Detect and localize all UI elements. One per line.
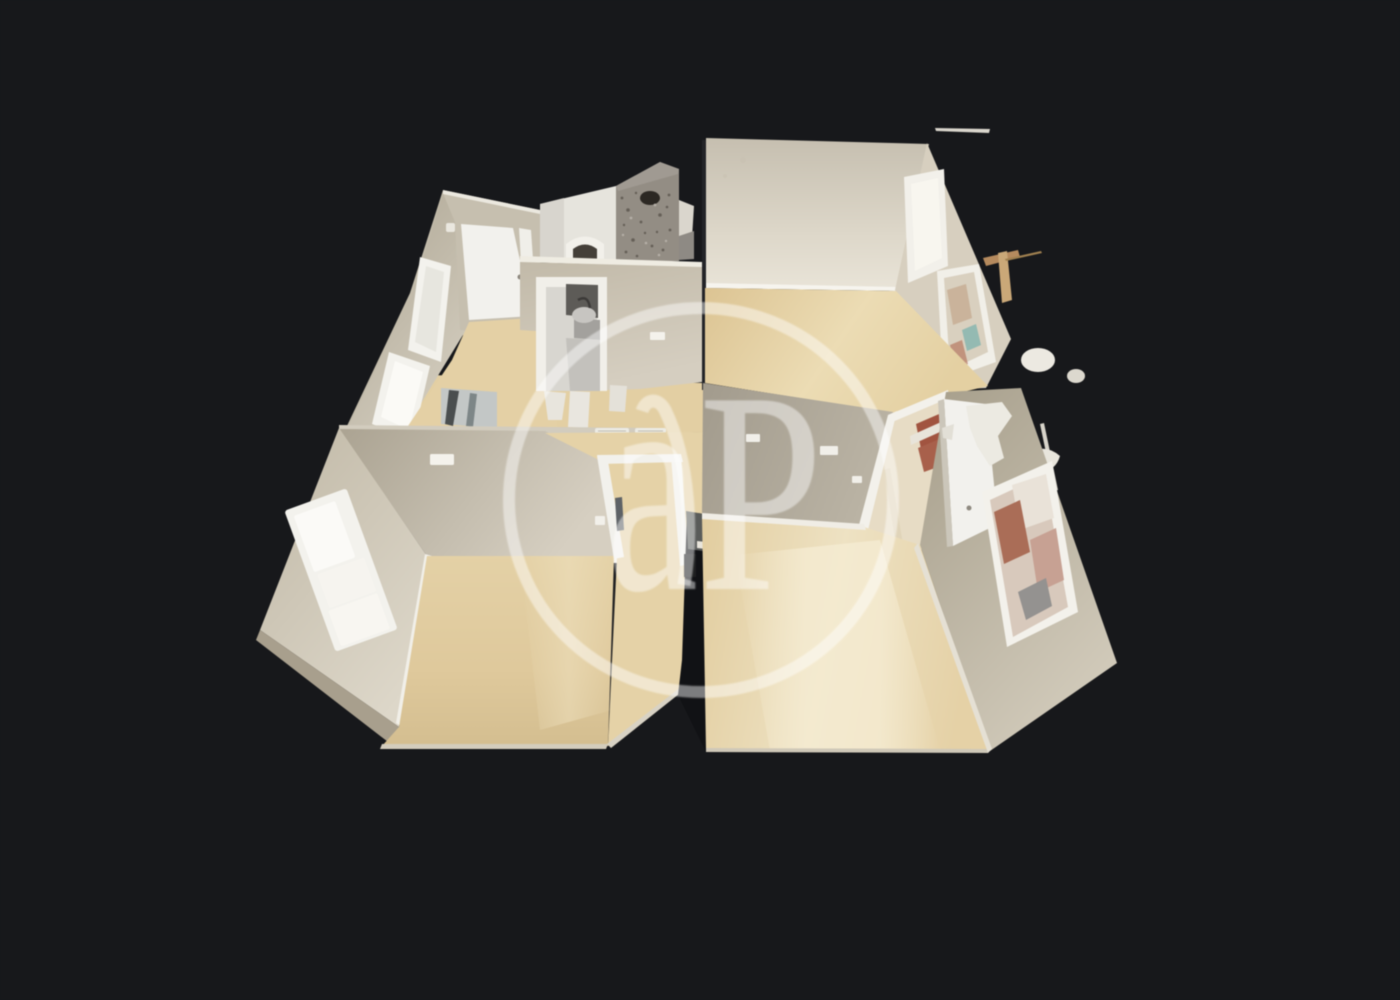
svg-text:P: P <box>699 332 823 651</box>
